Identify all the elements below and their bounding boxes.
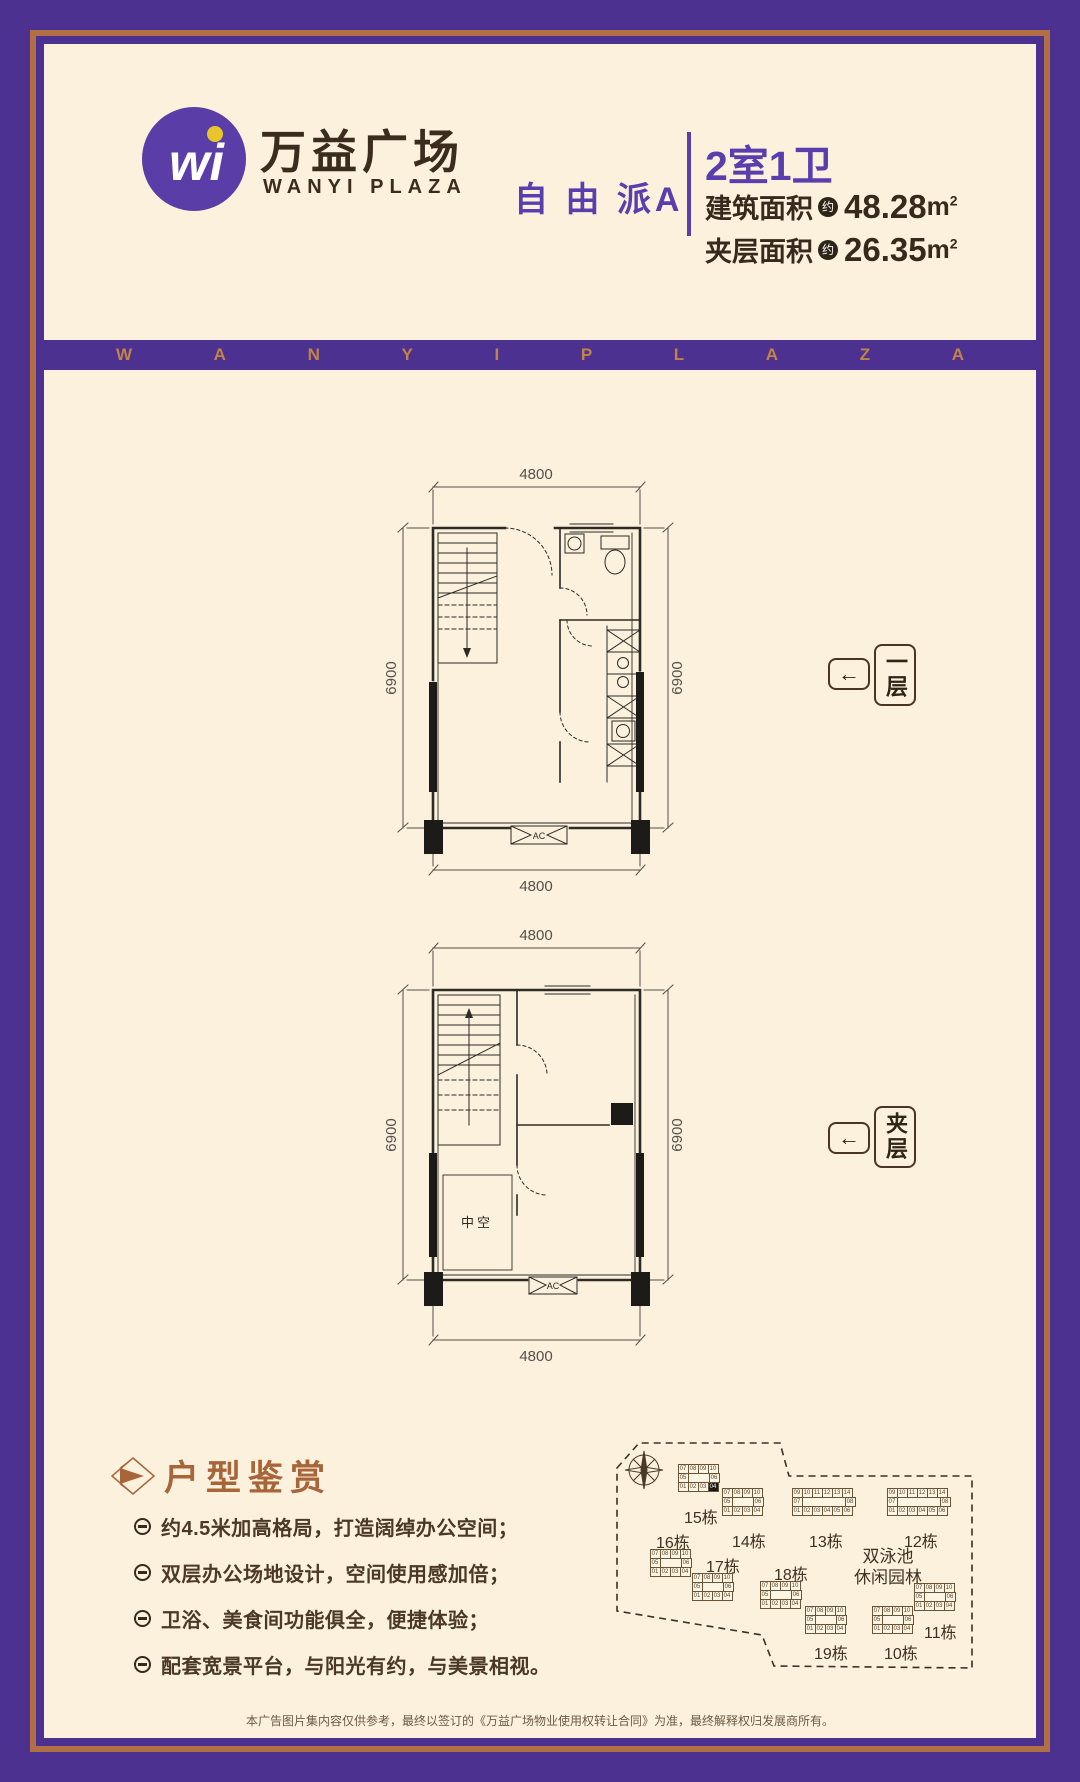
floorplan-mezzanine: 4800 4800 6900 6900 [355,925,695,1370]
unit-cell: 04 [944,1601,955,1611]
building-block-12栋: 0910111213140708010203040506 [887,1488,950,1515]
feature-text: 卫浴、美食间功能俱全，便捷体验； [161,1604,489,1633]
unit-cell: 04 [752,1506,763,1516]
disclaimer: 本广告图片集内容仅供参考，最终以签订的《万益广场物业使用权转让合同》为准，最终解… [44,1712,1036,1729]
building-label: 11栋 [924,1619,957,1643]
bullet-icon [134,1518,151,1535]
feature-item: 双层办公场地设计，空间使用感加倍； [134,1558,564,1587]
diamond-icon [110,1456,156,1496]
building-label: 18栋 [774,1561,808,1585]
unit-cell: 06 [937,1506,948,1516]
unit-series-label: 自 由 派A [514,172,683,221]
area-unit: m2 [927,234,958,265]
unit-cell: 04 [835,1624,846,1634]
ac-label: AC [533,831,546,841]
brand-logo-icon: wi [139,104,249,214]
brand-name-cn: 万益广场 [260,116,464,182]
dim-top: 4800 [519,927,552,944]
dim-bottom: 4800 [519,878,552,895]
approx-badge: 约 [818,240,838,260]
logo-monogram: wi [169,134,225,192]
building-block-15栋: 07080910050601020304 [678,1464,719,1491]
unit-title: 2室1卫 [705,132,833,192]
area-line-build: 建筑面积 约 48.28 m2 [705,187,958,226]
unit-cell: 04 [708,1482,719,1492]
header-panel: wi 万益广场 WANYI PLAZA 自 由 派A 2室1卫 建筑面积 约 4… [44,44,1036,340]
features-title: 户型鉴赏 [164,1450,332,1501]
dim-bottom: 4800 [519,1348,552,1365]
banner-letter: A [952,345,964,365]
unit-cell: 04 [680,1567,691,1577]
page-content: wi 万益广场 WANYI PLAZA 自 由 派A 2室1卫 建筑面积 约 4… [44,44,1036,1738]
banner-letter: A [214,345,226,365]
approx-badge: 约 [818,197,838,217]
dim-right: 6900 [669,1118,686,1151]
site-map: 双泳池 休闲园林 0708091005060102030415栋07080910… [572,1418,992,1718]
feature-item: 配套宽景平台，与阳光有约，与美景相视。 [134,1650,564,1679]
compass-icon [625,1451,663,1489]
area-line-mezz: 夹层面积 约 26.35 m2 [705,230,958,269]
unit-cell: 06 [842,1506,853,1516]
bullet-icon [134,1656,151,1673]
banner-letter: N [308,345,320,365]
building-label: 17栋 [706,1553,740,1577]
dim-left: 6900 [383,661,400,694]
building-block-11栋: 07080910050601020304 [914,1583,955,1610]
banner-letter: L [674,345,684,365]
area-label: 建筑面积 [705,187,813,226]
area-label: 夹层面积 [705,230,813,269]
banner-letter: A [766,345,778,365]
unit-cell: 04 [902,1624,913,1634]
features-heading: 户型鉴赏 [110,1450,332,1501]
building-label: 12栋 [904,1528,938,1552]
building-block-19栋: 07080910050601020304 [805,1606,846,1633]
area-value: 48.28 [844,188,927,226]
banner-letter: P [581,345,592,365]
building-label: 15栋 [684,1504,718,1528]
feature-list: 约4.5米加高格局，打造阔绰办公空间；双层办公场地设计，空间使用感加倍；卫浴、美… [134,1512,564,1696]
level1-tag: 一层 [874,644,916,706]
void-label: 中空 [461,1215,493,1230]
building-block-18栋: 07080910050601020304 [760,1581,801,1608]
floorplan-level1: 4800 4800 6900 6900 [355,430,695,905]
unit-cell: 04 [790,1599,801,1609]
feature-text: 约4.5米加高格局，打造阔绰办公空间； [161,1512,518,1541]
dim-right: 6900 [669,661,686,694]
building-label: 19栋 [814,1640,848,1664]
bullet-icon [134,1610,151,1627]
mezzanine-arrow-icon: ← [828,1122,870,1154]
building-block-10栋: 07080910050601020304 [872,1606,913,1633]
ac-label: AC [547,1281,560,1291]
banner-letter: Z [860,345,870,365]
feature-text: 双层办公场地设计，空间使用感加倍； [161,1558,510,1587]
feature-text: 配套宽景平台，与阳光有约，与美景相视。 [161,1650,551,1679]
feature-item: 约4.5米加高格局，打造阔绰办公空间； [134,1512,564,1541]
feature-item: 卫浴、美食间功能俱全，便捷体验； [134,1604,564,1633]
building-block-16栋: 07080910050601020304 [650,1549,691,1576]
banner-letter: Y [401,345,412,365]
mezzanine-tag: 夹层 [874,1106,916,1168]
banner-letter: I [494,345,499,365]
building-block-14栋: 07080910050601020304 [722,1488,763,1515]
building-block-17栋: 07080910050601020304 [692,1573,733,1600]
building-label: 10栋 [884,1640,918,1664]
building-label: 14栋 [732,1528,766,1552]
area-unit: m2 [927,191,958,222]
building-label: 13栋 [809,1528,843,1552]
area-value: 26.35 [844,231,927,269]
dim-left: 6900 [383,1118,400,1151]
building-block-13栋: 0910111213140708010203040506 [792,1488,855,1515]
brand-name-en: WANYI PLAZA [263,176,467,199]
unit-cell: 04 [722,1591,733,1601]
building-label: 16栋 [656,1529,690,1553]
level1-arrow-icon: ← [828,658,870,690]
wanyi-plaza-letter-band: WANYIPLAZA [44,340,1036,370]
banner-letter: W [116,345,132,365]
bullet-icon [134,1564,151,1581]
dim-top: 4800 [519,466,552,483]
header-divider [687,132,691,236]
